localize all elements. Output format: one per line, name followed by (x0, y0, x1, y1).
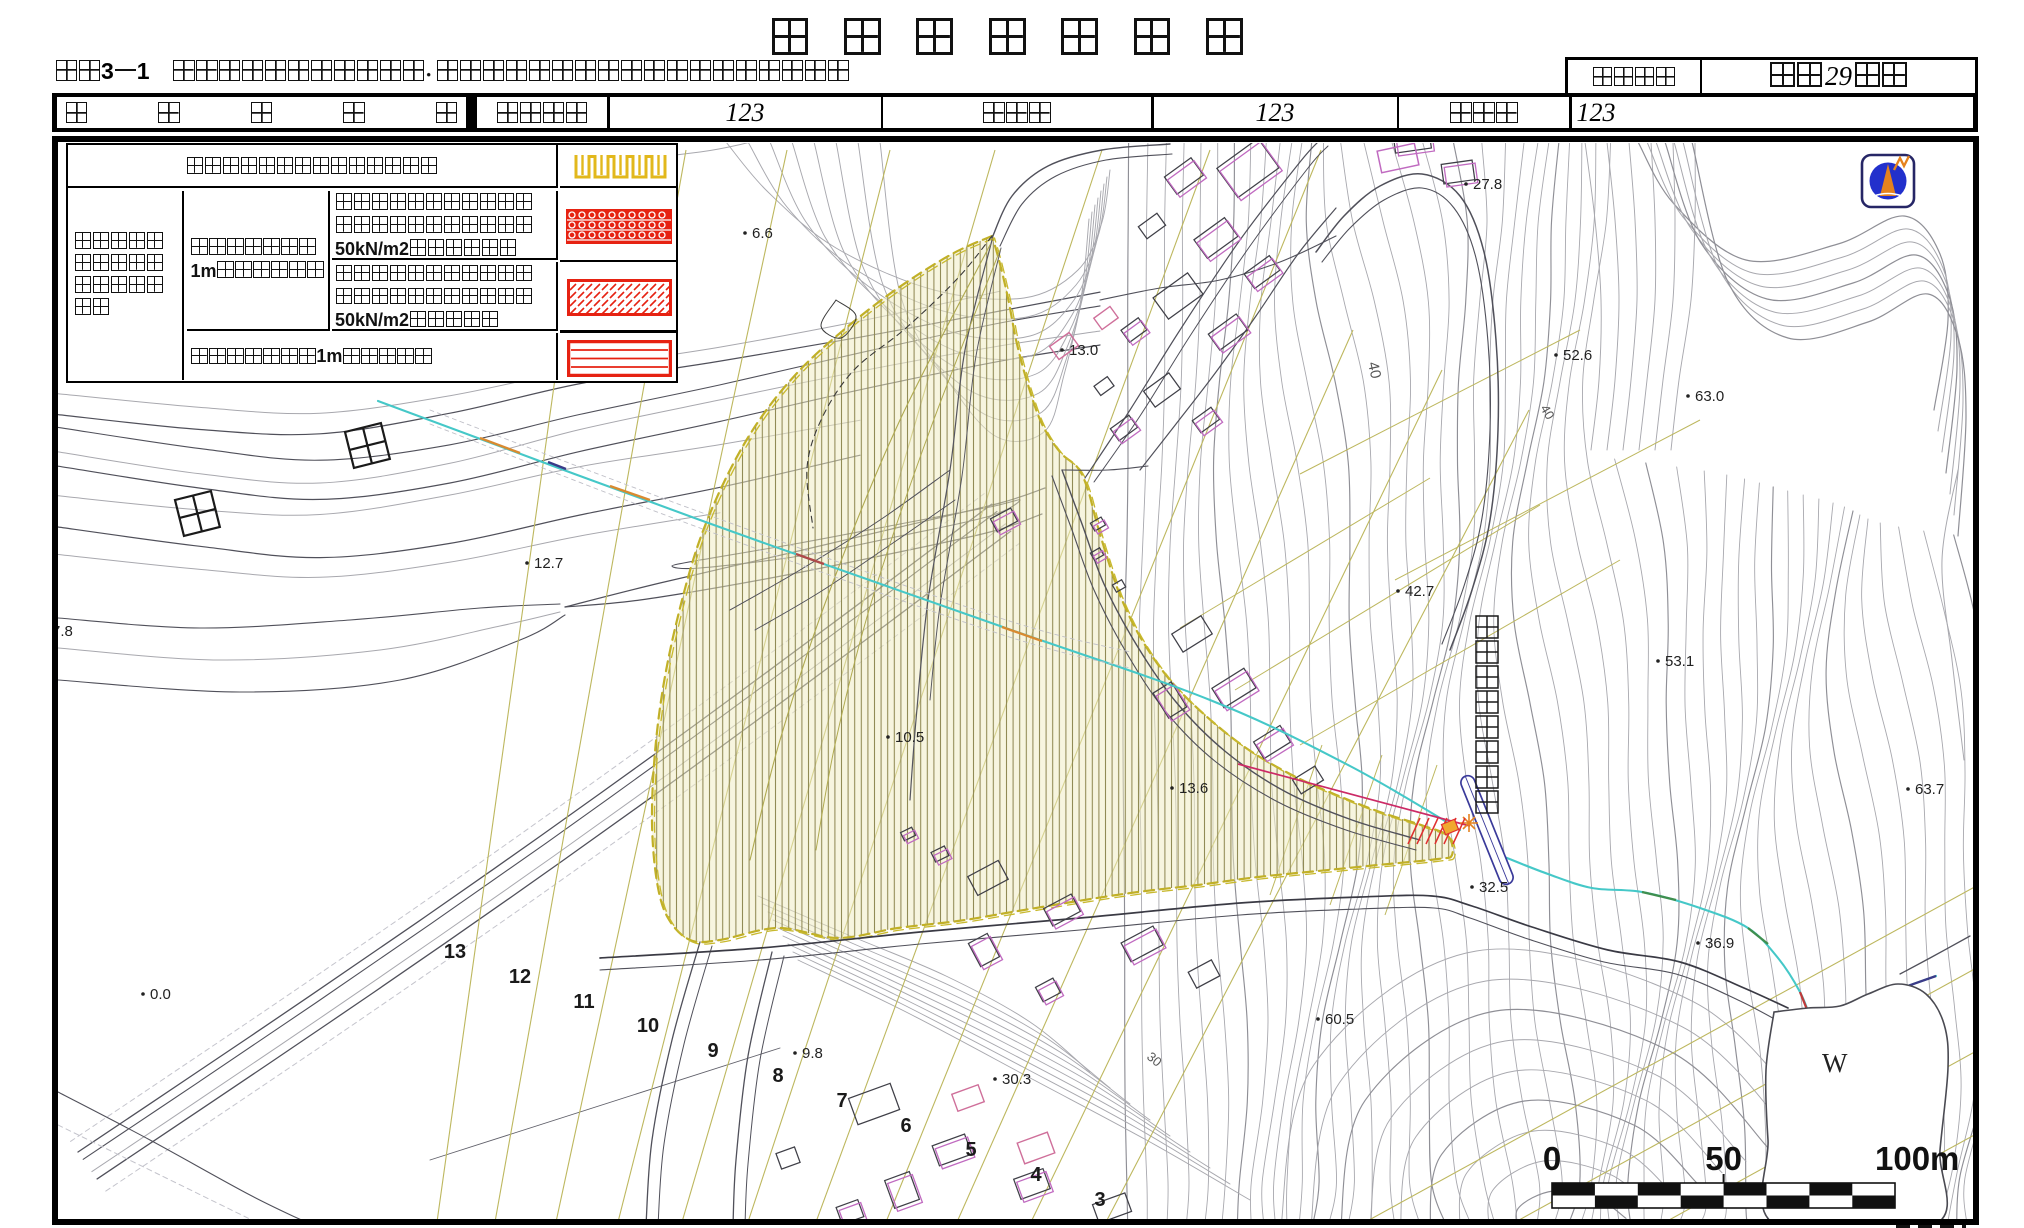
svg-text:6.6: 6.6 (752, 225, 773, 242)
svg-text:W: W (1822, 1048, 1848, 1078)
svg-text:53.1: 53.1 (1665, 653, 1694, 670)
svg-text:13.6: 13.6 (1179, 780, 1208, 797)
svg-text:8: 8 (772, 1065, 783, 1087)
svg-text:60.5: 60.5 (1325, 1011, 1354, 1028)
svg-text:12: 12 (509, 966, 531, 988)
svg-text:9.8: 9.8 (802, 1045, 823, 1062)
svg-text:12.7: 12.7 (534, 555, 563, 572)
svg-text:11: 11 (573, 991, 594, 1013)
svg-text:36.9: 36.9 (1705, 935, 1734, 952)
svg-text:52.6: 52.6 (1563, 347, 1592, 364)
svg-text:6: 6 (900, 1115, 911, 1137)
svg-text:9: 9 (707, 1040, 718, 1062)
svg-text:63.7: 63.7 (1915, 781, 1944, 798)
svg-text:50: 50 (1705, 1140, 1742, 1177)
svg-text:3: 3 (1094, 1189, 1105, 1211)
svg-text:10: 10 (637, 1015, 659, 1037)
svg-text:13: 13 (444, 941, 466, 963)
svg-text:5: 5 (965, 1139, 976, 1161)
svg-text:27.8: 27.8 (1473, 176, 1502, 193)
svg-text:7: 7 (836, 1090, 847, 1112)
svg-text:30.3: 30.3 (1002, 1071, 1031, 1088)
svg-text:42.7: 42.7 (1405, 583, 1434, 600)
svg-text:32.5: 32.5 (1479, 879, 1508, 896)
svg-text:4: 4 (1030, 1164, 1042, 1186)
svg-text:40: 40 (1364, 360, 1384, 380)
svg-text:10.5: 10.5 (895, 729, 924, 746)
svg-text:0: 0 (1543, 1140, 1561, 1177)
svg-text:13.0: 13.0 (1069, 342, 1098, 359)
svg-text:100m: 100m (1875, 1140, 1959, 1177)
svg-text:0.0: 0.0 (150, 986, 171, 1003)
svg-text:63.0: 63.0 (1695, 388, 1724, 405)
svg-text:7.8: 7.8 (58, 623, 73, 640)
